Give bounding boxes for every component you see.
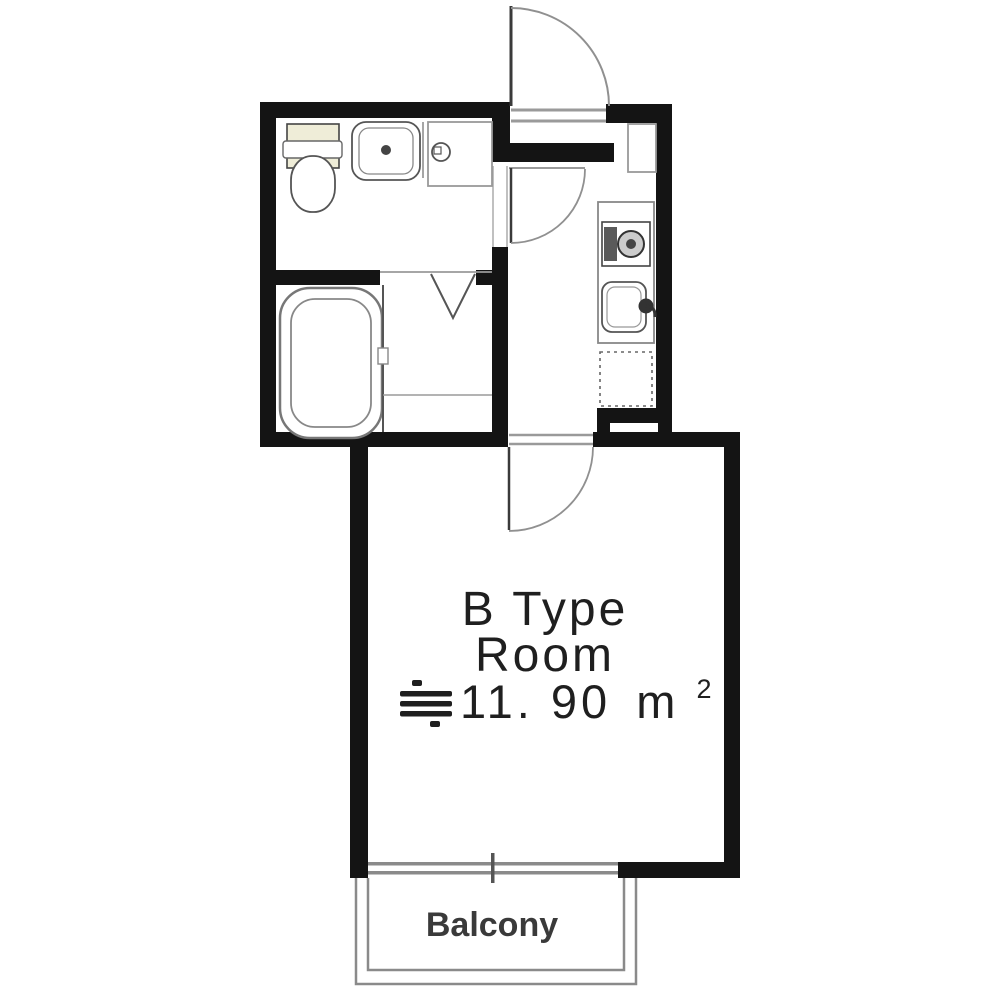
- room-door-arc-icon: [509, 435, 593, 531]
- wall-mainroom-right: [724, 432, 740, 878]
- area-unit: m: [636, 675, 679, 728]
- stove-pad: [604, 227, 617, 261]
- washbasin-icon: [352, 122, 423, 180]
- bathtub-icon: [280, 288, 382, 438]
- kitchen-sink-inner: [607, 287, 641, 327]
- wall-washroom-right-upper: [492, 102, 510, 162]
- balcony-label: Balcony: [426, 906, 558, 944]
- toilet-icon: [283, 124, 342, 212]
- shoe-cabinet: [628, 124, 656, 172]
- folding-door-v: [431, 274, 475, 318]
- bathroom-partition: [378, 285, 492, 432]
- entrance-door-arc-icon: [511, 6, 609, 121]
- shoe-cabinet-icon: [628, 124, 656, 172]
- floor-plan-page: B Type Room 11. 90 m 2 Balcony: [0, 0, 1000, 1000]
- walls: [260, 102, 740, 878]
- floor-plan: B Type Room 11. 90 m 2 Balcony: [0, 0, 1000, 1000]
- wall-kitchen-right: [656, 104, 672, 440]
- wall-genkan-hall: [508, 143, 614, 162]
- main-room-label: B Type Room 11. 90 m 2: [400, 583, 716, 728]
- balcony-window-center-tick: [491, 853, 495, 883]
- washroom-door-opening: [493, 166, 507, 247]
- approx-equals-icon: [400, 680, 452, 727]
- balcony-window-icon: [368, 853, 618, 883]
- area-value: 11. 90: [460, 675, 611, 728]
- wall-washroom-bath-divider: [260, 270, 380, 285]
- refrigerator-space-icon: [600, 352, 652, 406]
- wall-washroom-top: [260, 102, 510, 118]
- entrance-door-swing-arc: [511, 8, 609, 106]
- wall-mainroom-bottom-right: [618, 862, 740, 878]
- room-door-swing-arc: [509, 447, 593, 531]
- stove-icon: [602, 222, 650, 266]
- toilet-bowl: [291, 156, 335, 212]
- area-unit-exponent: 2: [696, 674, 715, 704]
- wall-kitchen-bottom-notch: [610, 423, 658, 432]
- kitchen-unit: [598, 202, 655, 406]
- main-room-area-text: 11. 90 m 2: [460, 674, 716, 728]
- wall-mainroom-left: [350, 432, 368, 878]
- wall-mainroom-top-right: [593, 432, 740, 447]
- hall-door-swing-arc: [511, 169, 585, 243]
- folding-door-icon: [380, 272, 492, 318]
- wall-washroom-right-lower: [492, 247, 508, 447]
- washing-machine-pan-icon: [428, 122, 492, 186]
- stove-burner-center: [626, 239, 636, 249]
- bathtub-inner: [291, 299, 371, 427]
- hall-door-arc-icon: [509, 168, 585, 243]
- bathroom-partition-handle: [378, 348, 388, 364]
- washing-machine-faucet-notch: [434, 147, 441, 154]
- washbasin-drain: [381, 145, 391, 155]
